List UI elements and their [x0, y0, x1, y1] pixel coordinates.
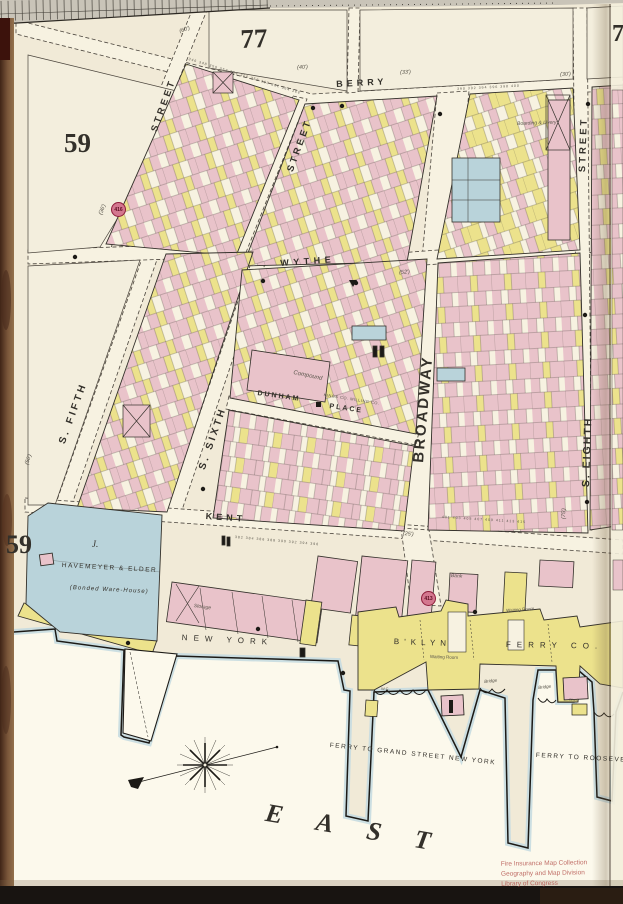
adjacent-sheet-number: 7: [612, 22, 623, 46]
reference-circle-413: 413: [421, 591, 436, 606]
library-stamp: Fire Insurance Map Collection Geography …: [501, 858, 588, 889]
waiting-room-label-2: Waiting Room: [430, 655, 458, 660]
sheet-number: 77: [240, 25, 268, 53]
width-mark: (52'): [399, 270, 410, 276]
block-number-59-upper: 59: [64, 130, 91, 157]
map-canvas: [0, 0, 623, 904]
wc-label: W.C.: [381, 687, 390, 691]
shed-label: Shed: [569, 698, 578, 702]
stamp-line-3: Library of Congress: [501, 878, 588, 889]
block-number-59-lower: 59: [6, 532, 32, 558]
reference-circle-416: 416: [111, 202, 126, 217]
street-label-street-c: STREET: [578, 117, 589, 173]
width-mark: (25'): [403, 532, 414, 538]
width-mark: (33'): [400, 70, 411, 76]
havemeyer-key-letter: J.: [92, 540, 98, 549]
sanborn-map-page: 77 7 59 59 BERRY WYTHE KENT BROADWAY S. …: [0, 0, 623, 904]
city-blocks: [77, 64, 623, 533]
book-edge-left: [0, 18, 14, 888]
street-label-s-eighth: S. EIGHTH: [581, 417, 594, 488]
width-mark: (30'): [560, 72, 571, 78]
stamp-line-2: Geography and Map Division: [501, 868, 588, 879]
bank-label: Bank: [451, 574, 463, 580]
width-mark: (40'): [297, 65, 308, 71]
width-mark: (75'): [562, 508, 568, 519]
ferry-co-name-ferry-co: FERRY CO.: [506, 641, 603, 651]
